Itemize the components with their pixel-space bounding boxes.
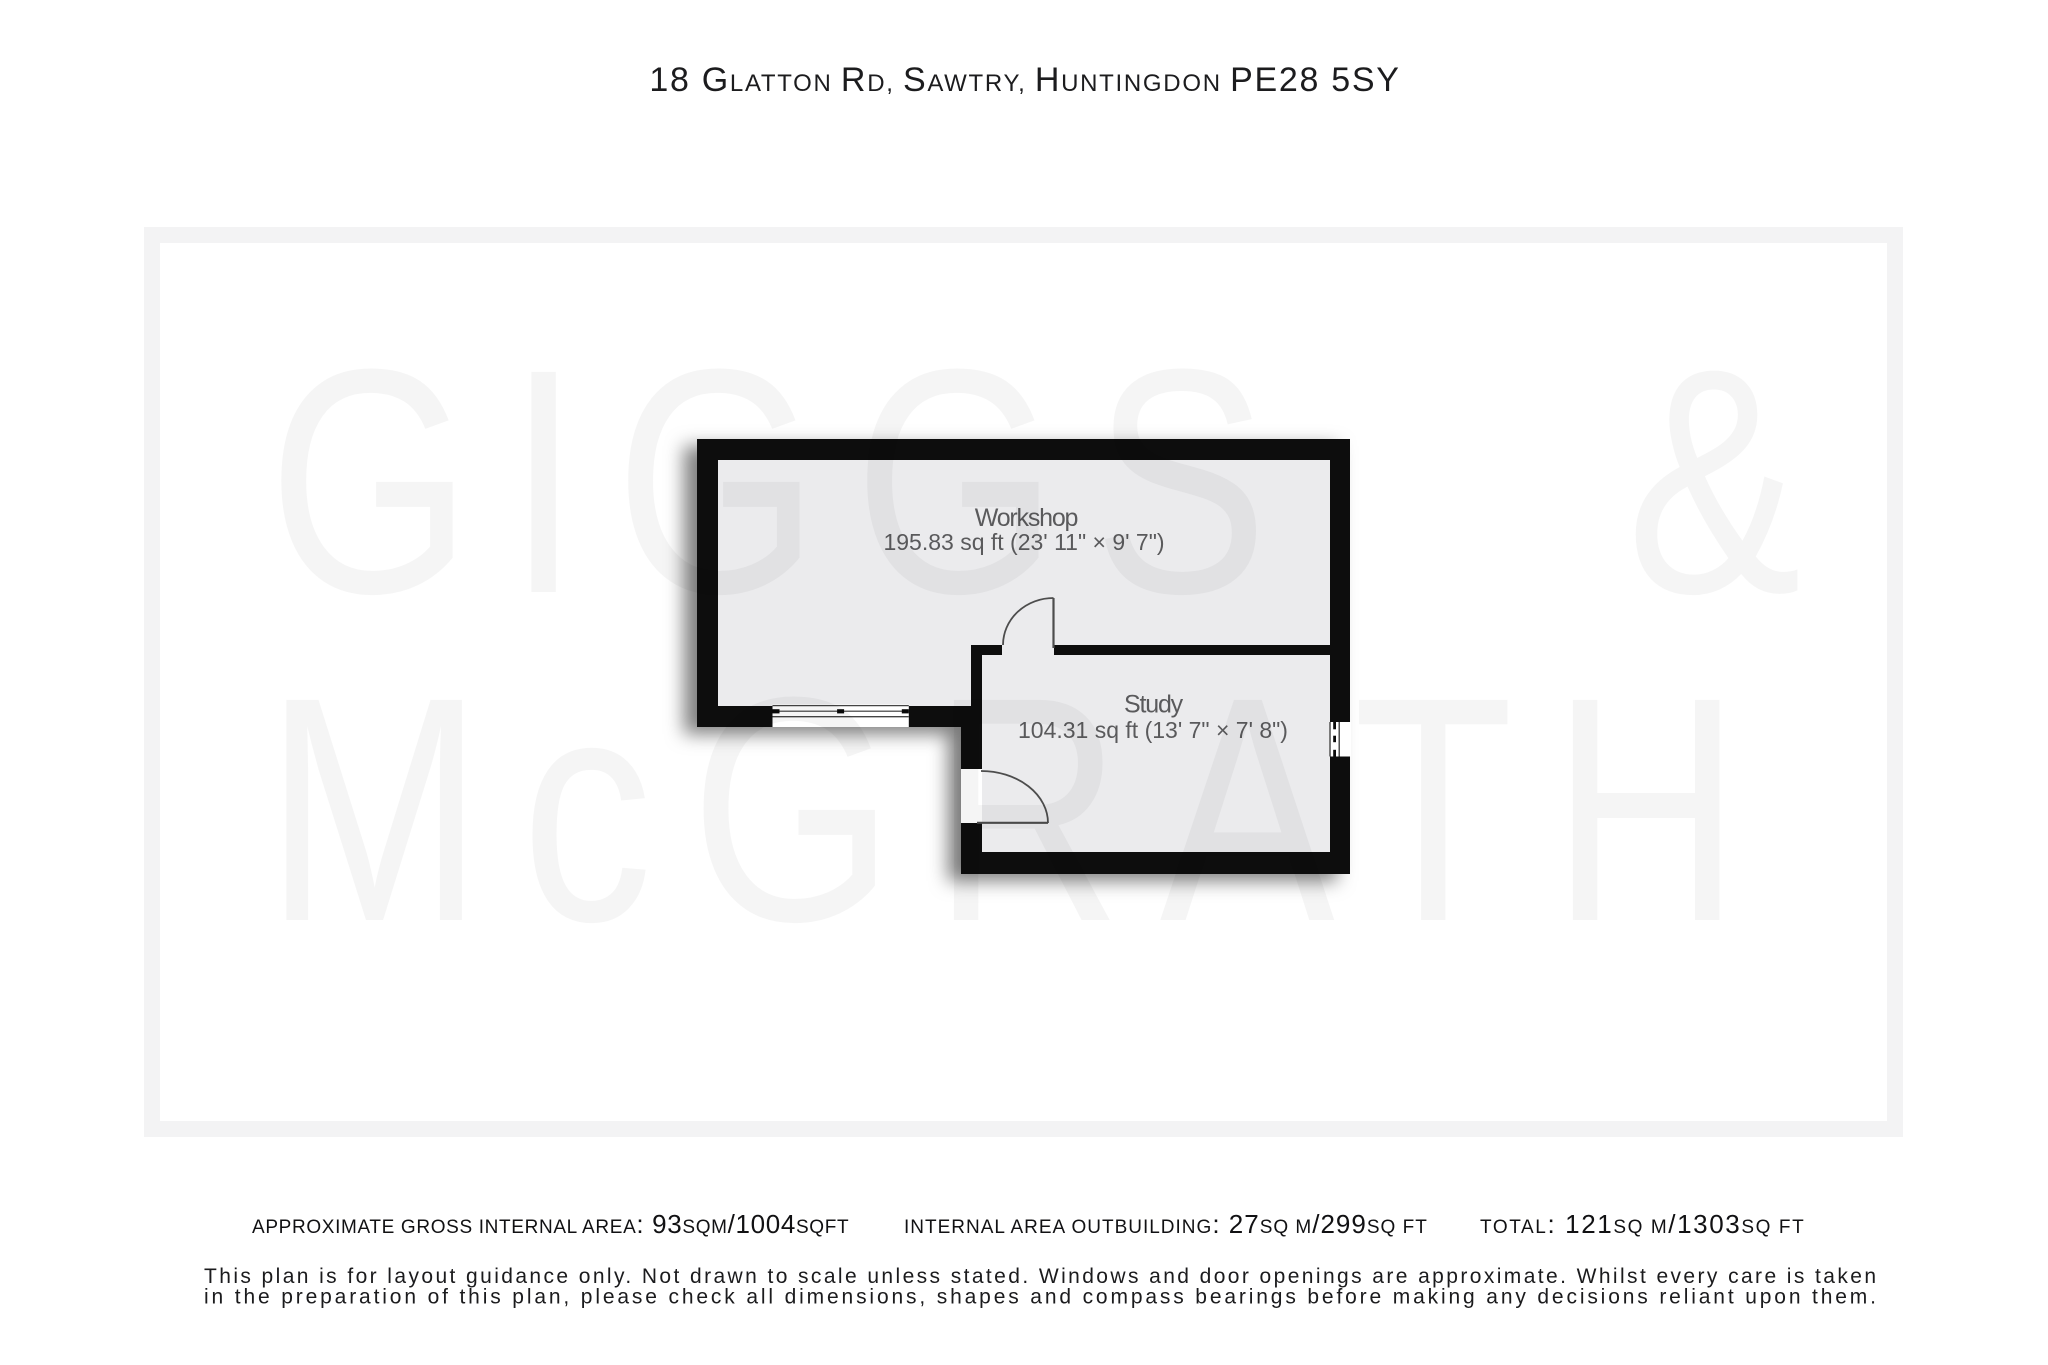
svg-text:APPROXIMATE GROSS INTERNAL ARE: APPROXIMATE GROSS INTERNAL AREA: 93SQM/1…: [252, 1209, 849, 1239]
svg-text:GIGGS &: GIGGS &: [268, 303, 1801, 661]
svg-text:in the preparation of this pla: in the preparation of this plan, please …: [204, 1286, 1876, 1309]
svg-text:18 GLATTON RD, SAWTRY, HUNTING: 18 GLATTON RD, SAWTRY, HUNTINGDON PE28 5…: [649, 61, 1400, 99]
svg-text:TOTAL: 121SQ M/1303SQ FT: TOTAL: 121SQ M/1303SQ FT: [1480, 1209, 1805, 1239]
svg-text:INTERNAL AREA OUTBUILDING: 27S: INTERNAL AREA OUTBUILDING: 27SQ M/299SQ …: [904, 1209, 1428, 1239]
svg-text:McGRATH: McGRATH: [265, 631, 1741, 989]
